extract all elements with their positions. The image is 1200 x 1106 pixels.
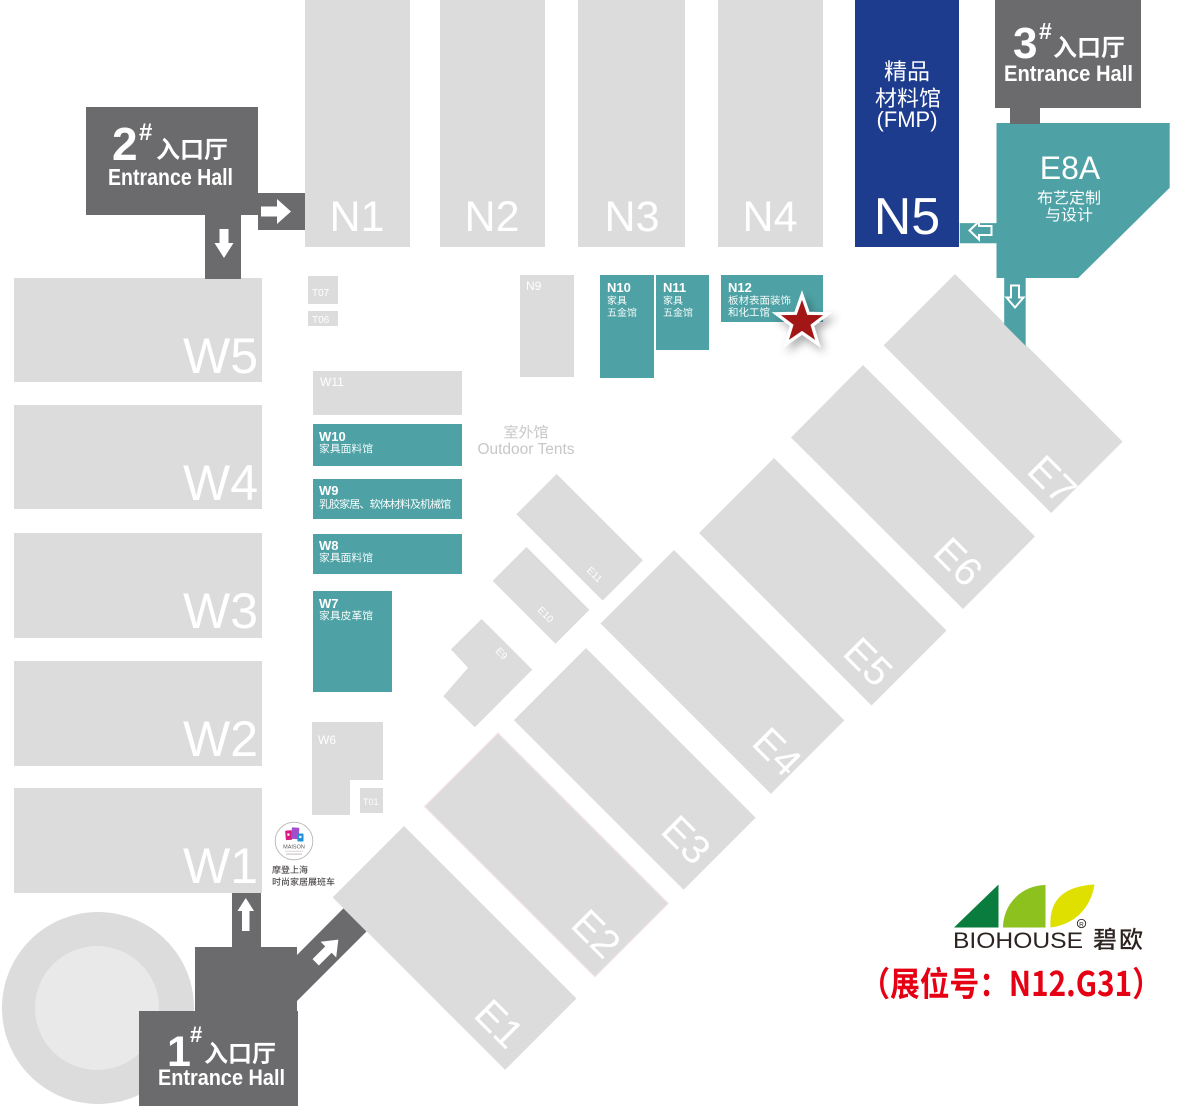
svg-text:N12: N12: [728, 280, 752, 295]
svg-text:N11: N11: [663, 280, 686, 295]
svg-text:2: 2: [112, 118, 138, 170]
svg-text:W2: W2: [183, 711, 258, 767]
svg-text:N1: N1: [330, 193, 385, 241]
svg-text:W5: W5: [183, 328, 258, 384]
svg-text:N9: N9: [526, 279, 542, 293]
svg-text:W6: W6: [318, 733, 336, 747]
svg-text:W8: W8: [319, 538, 339, 553]
svg-text:Entrance Hall: Entrance Hall: [158, 1065, 285, 1090]
svg-text:#: #: [190, 1022, 202, 1047]
svg-text:BIOHOUSE: BIOHOUSE: [953, 928, 1083, 953]
svg-text:MAISON: MAISON: [283, 845, 305, 851]
svg-text:N10: N10: [607, 280, 631, 295]
svg-text:N5: N5: [874, 188, 940, 246]
svg-text:W10: W10: [319, 429, 346, 444]
svg-text:(FMP): (FMP): [876, 107, 937, 132]
svg-text:N3: N3: [605, 193, 660, 241]
svg-text:W9: W9: [319, 483, 339, 498]
svg-text:T01: T01: [363, 797, 379, 807]
svg-text:Entrance Hall: Entrance Hall: [108, 164, 233, 190]
svg-text:E8A: E8A: [1040, 150, 1101, 186]
svg-text:#: #: [139, 119, 152, 146]
svg-text:W4: W4: [183, 455, 258, 511]
svg-text:Outdoor Tents: Outdoor Tents: [477, 441, 574, 458]
svg-text:N2: N2: [465, 193, 520, 241]
svg-text:W7: W7: [319, 596, 339, 611]
svg-text:W11: W11: [320, 375, 344, 389]
svg-text:T07: T07: [312, 288, 330, 299]
svg-text:W1: W1: [183, 838, 258, 894]
svg-text:W3: W3: [183, 583, 258, 639]
svg-text:N4: N4: [743, 193, 798, 241]
svg-text:#: #: [1039, 18, 1052, 44]
svg-text:T06: T06: [312, 315, 330, 326]
svg-text:Entrance Hall: Entrance Hall: [1004, 61, 1133, 86]
